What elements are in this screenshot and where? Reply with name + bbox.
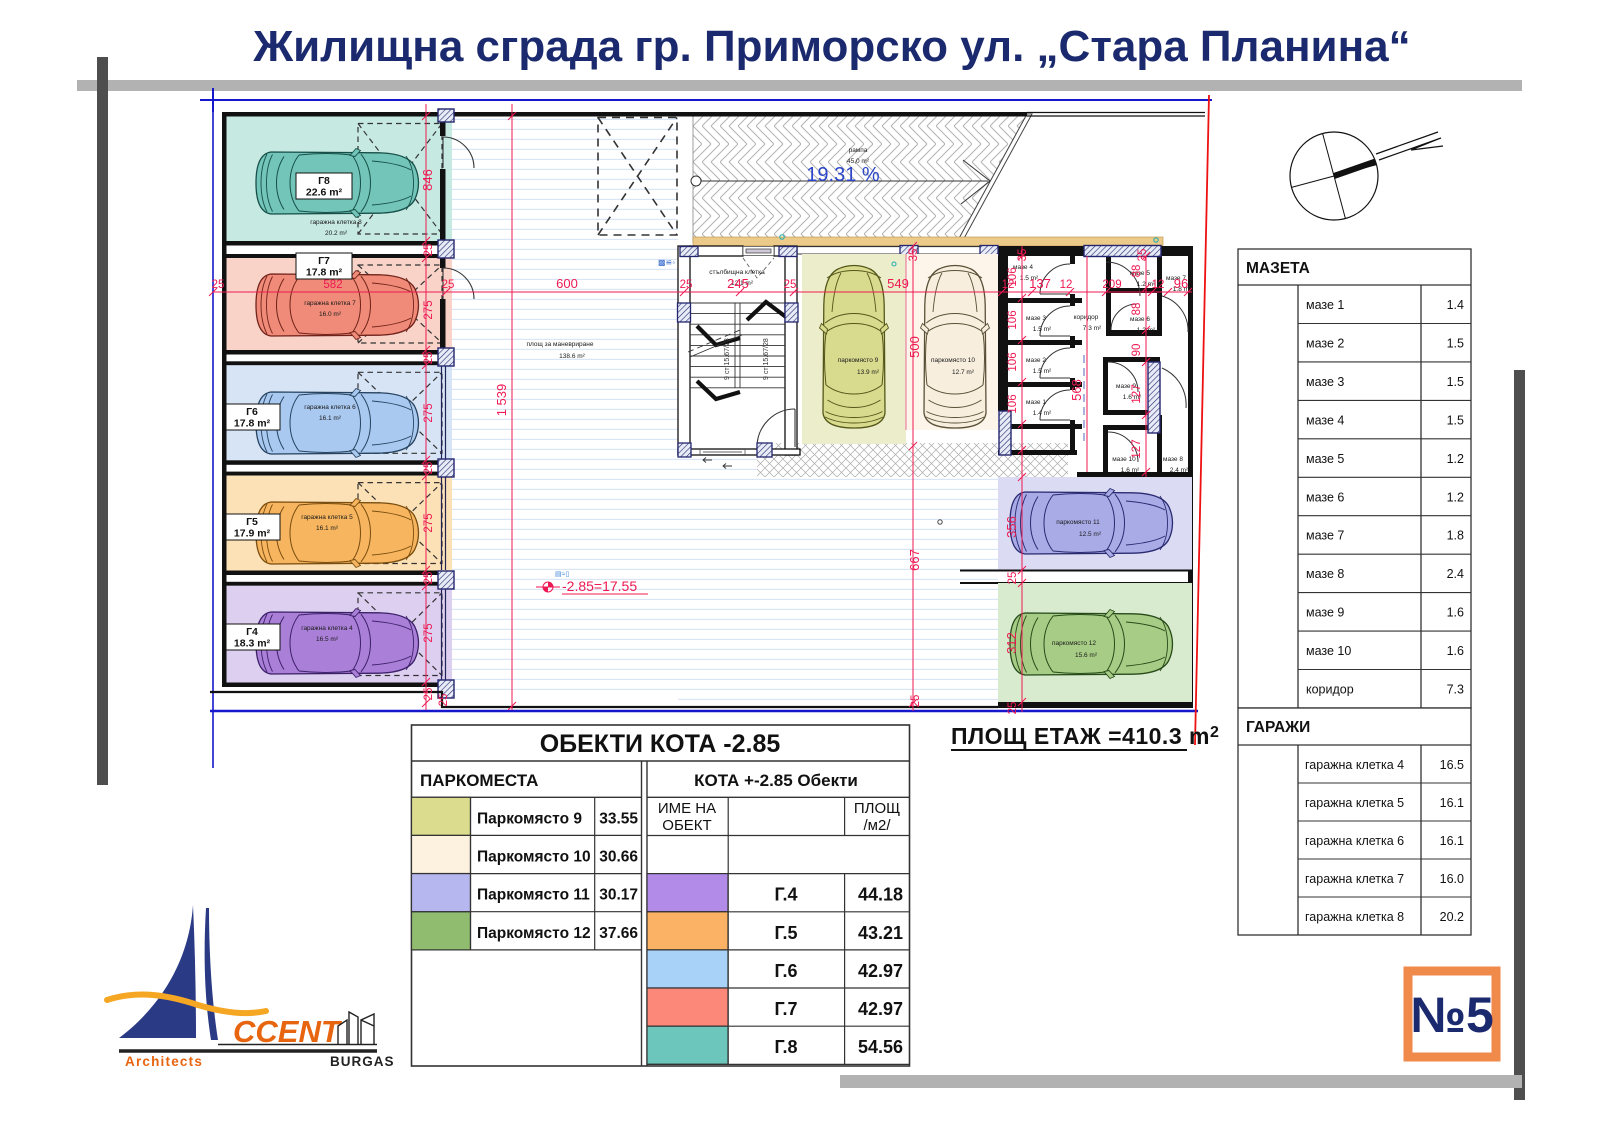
svg-text:1.5: 1.5 — [1447, 375, 1464, 389]
svg-text:25: 25 — [423, 572, 435, 585]
svg-text:Architects: Architects — [125, 1054, 203, 1069]
svg-text:275: 275 — [423, 513, 435, 532]
svg-text:мазе 6: мазе 6 — [1306, 490, 1344, 504]
svg-text:25: 25 — [423, 688, 435, 701]
svg-text:90: 90 — [1131, 344, 1143, 357]
svg-text:гаражна клетка 7: гаражна клетка 7 — [304, 300, 356, 307]
svg-text:-2.85=17.55: -2.85=17.55 — [562, 578, 637, 594]
svg-text:▤≈▯: ▤≈▯ — [555, 571, 569, 578]
svg-text:Г.5: Г.5 — [775, 923, 798, 943]
svg-text:Г.4: Г.4 — [775, 885, 798, 905]
svg-text:ПЛОЩ ЕТАЖ =410.3 m2: ПЛОЩ ЕТАЖ =410.3 m2 — [951, 723, 1219, 749]
svg-text:13.9 m²: 13.9 m² — [857, 369, 880, 376]
svg-text:12.5 m²: 12.5 m² — [1079, 531, 1102, 538]
svg-text:44.18: 44.18 — [858, 885, 903, 905]
svg-text:1.6: 1.6 — [1447, 644, 1464, 658]
svg-text:7.3 m²: 7.3 m² — [1083, 325, 1102, 332]
svg-text:42.97: 42.97 — [858, 999, 903, 1019]
svg-text:1.6 m²: 1.6 m² — [1121, 467, 1140, 474]
svg-text:Г.6: Г.6 — [775, 961, 798, 981]
svg-text:мазе 2: мазе 2 — [1026, 357, 1046, 364]
svg-text:7.3: 7.3 — [1447, 683, 1464, 697]
svg-text:гаражна клетка 8: гаражна клетка 8 — [310, 219, 362, 226]
svg-text:15.6 m²: 15.6 m² — [1075, 652, 1098, 659]
svg-text:Паркомясто 12: Паркомясто 12 — [477, 925, 591, 942]
svg-text:ПЛОЩ: ПЛОЩ — [854, 800, 900, 817]
svg-text:ОБЕКТ: ОБЕКТ — [662, 817, 711, 834]
svg-text:846: 846 — [420, 169, 435, 191]
svg-text:паркомясто 12: паркомясто 12 — [1052, 640, 1096, 647]
svg-text:Паркомясто 11: Паркомясто 11 — [477, 887, 590, 904]
svg-text:9 ст 15.67/28: 9 ст 15.67/28 — [763, 338, 770, 380]
svg-text:19.31 %: 19.31 % — [806, 164, 880, 186]
svg-text:гаражна клетка 4: гаражна клетка 4 — [301, 625, 353, 632]
svg-text:Г6: Г6 — [246, 406, 258, 418]
svg-text:2.4: 2.4 — [1447, 567, 1464, 581]
svg-text:33.55: 33.55 — [599, 810, 638, 827]
svg-text:паркомясто 9: паркомясто 9 — [838, 357, 879, 364]
svg-text:275: 275 — [423, 300, 435, 319]
svg-text:667: 667 — [907, 549, 922, 571]
svg-text:25: 25 — [1007, 572, 1019, 585]
svg-text:356: 356 — [1004, 516, 1019, 538]
svg-text:17.9 m²: 17.9 m² — [234, 528, 271, 540]
svg-text:12.7 m²: 12.7 m² — [952, 369, 975, 376]
svg-text:25: 25 — [423, 244, 435, 257]
svg-text:25: 25 — [442, 279, 455, 291]
svg-text:22.6 m²: 22.6 m² — [306, 187, 343, 199]
svg-text:17.8 m²: 17.8 m² — [234, 418, 271, 430]
svg-text:16.1: 16.1 — [1440, 796, 1464, 810]
svg-text:коридор: коридор — [1074, 314, 1099, 321]
svg-text:20.2 m²: 20.2 m² — [325, 230, 348, 237]
svg-text:275: 275 — [423, 403, 435, 422]
svg-text:16.1 m²: 16.1 m² — [316, 525, 339, 532]
svg-text:Жилищна сграда гр. Приморско у: Жилищна сграда гр. Приморско ул. „Стара … — [252, 22, 1410, 71]
svg-text:106: 106 — [1007, 310, 1019, 329]
svg-text:275: 275 — [423, 623, 435, 642]
svg-text:16.5 m²: 16.5 m² — [316, 636, 339, 643]
svg-text:25: 25 — [1007, 702, 1019, 715]
svg-text:20.2: 20.2 — [1440, 910, 1464, 924]
svg-text:25: 25 — [212, 279, 225, 291]
svg-text:стълбищна клетка: стълбищна клетка — [709, 268, 765, 276]
svg-text:16.0 m²: 16.0 m² — [319, 311, 342, 318]
svg-text:мазе 6: мазе 6 — [1130, 316, 1150, 323]
svg-text:гаражна клетка 4: гаражна клетка 4 — [1305, 758, 1404, 772]
svg-text:мазе 2: мазе 2 — [1306, 337, 1344, 351]
svg-text:25: 25 — [423, 462, 435, 475]
svg-text:гаражна клетка 6: гаражна клетка 6 — [1305, 834, 1404, 848]
svg-text:500: 500 — [907, 336, 922, 358]
svg-text:549: 549 — [887, 276, 909, 291]
svg-text:137: 137 — [1029, 276, 1051, 291]
svg-text:рампа: рампа — [849, 147, 868, 154]
svg-text:16.1 m²: 16.1 m² — [319, 415, 342, 422]
svg-text:16.0: 16.0 — [1440, 872, 1464, 886]
svg-text:1.5: 1.5 — [1447, 413, 1464, 427]
svg-text:1.4: 1.4 — [1447, 298, 1464, 312]
svg-text:ИМЕ НА: ИМЕ НА — [658, 800, 716, 817]
svg-text:1.5 m²: 1.5 m² — [1033, 326, 1052, 333]
svg-text:25: 25 — [784, 279, 797, 291]
svg-text:Г8: Г8 — [318, 175, 330, 187]
svg-text:ОБЕКТИ КОТА -2.85: ОБЕКТИ КОТА -2.85 — [540, 730, 781, 758]
svg-text:Г4: Г4 — [246, 626, 258, 638]
svg-text:12: 12 — [1152, 279, 1165, 291]
svg-text:гаражна клетка 5: гаражна клетка 5 — [1305, 796, 1404, 810]
svg-text:№5: №5 — [1410, 987, 1494, 1043]
svg-text:мазе 8: мазе 8 — [1306, 567, 1344, 581]
svg-text:1 539: 1 539 — [494, 384, 509, 417]
svg-text:106: 106 — [1007, 352, 1019, 371]
svg-text:мазе 3: мазе 3 — [1026, 315, 1046, 322]
svg-text:мазе 8: мазе 8 — [1163, 456, 1183, 463]
svg-text:Г.7: Г.7 — [775, 999, 798, 1019]
svg-text:коридор: коридор — [1306, 683, 1354, 697]
svg-text:▩≌◦: ▩≌◦ — [658, 258, 675, 267]
svg-text:МАЗЕТА: МАЗЕТА — [1246, 260, 1310, 277]
svg-text:мазе 10: мазе 10 — [1306, 644, 1351, 658]
svg-text:мазе 1: мазе 1 — [1306, 298, 1344, 312]
svg-text:30.17: 30.17 — [599, 887, 638, 904]
svg-text:18.3 m²: 18.3 m² — [234, 638, 271, 650]
svg-text:16.5: 16.5 — [1440, 758, 1464, 772]
svg-text:паркомясто 11: паркомясто 11 — [1056, 519, 1100, 526]
svg-text:мазе 3: мазе 3 — [1306, 375, 1344, 389]
svg-text:гаражна клетка 8: гаражна клетка 8 — [1305, 910, 1404, 924]
svg-text:Г7: Г7 — [318, 255, 330, 267]
svg-text:127: 127 — [1131, 439, 1143, 458]
svg-text:600: 600 — [556, 276, 578, 291]
svg-text:ГАРАЖИ: ГАРАЖИ — [1246, 719, 1310, 736]
svg-text:42.97: 42.97 — [858, 961, 903, 981]
svg-text:мазе 4: мазе 4 — [1306, 413, 1344, 427]
svg-text:127: 127 — [1131, 384, 1143, 403]
svg-text:245: 245 — [727, 276, 749, 291]
svg-text:25: 25 — [423, 352, 435, 365]
svg-text:25: 25 — [438, 694, 450, 707]
svg-text:209: 209 — [1102, 279, 1121, 291]
svg-text:BURGAS: BURGAS — [330, 1054, 395, 1069]
svg-text:568: 568 — [1069, 379, 1084, 401]
svg-text:1.2: 1.2 — [1447, 490, 1464, 504]
svg-text:25: 25 — [910, 695, 922, 708]
svg-text:30.66: 30.66 — [599, 848, 638, 865]
svg-text:ПАРКОМЕСТА: ПАРКОМЕСТА — [420, 771, 538, 790]
svg-text:мазе 5: мазе 5 — [1306, 452, 1344, 466]
svg-text:Г5: Г5 — [246, 516, 258, 528]
svg-text:1.2: 1.2 — [1447, 452, 1464, 466]
svg-text:582: 582 — [323, 279, 342, 291]
svg-text:паркомясто 10: паркомясто 10 — [931, 357, 975, 364]
svg-text:гаражна клетка 7: гаражна клетка 7 — [1305, 872, 1404, 886]
svg-text:96: 96 — [1174, 276, 1188, 291]
svg-text:1.5: 1.5 — [1447, 337, 1464, 351]
svg-text:1.6: 1.6 — [1447, 606, 1464, 620]
svg-text:Г.8: Г.8 — [775, 1037, 798, 1057]
svg-text:25: 25 — [680, 279, 693, 291]
svg-text:КОТА +-2.85 Обекти: КОТА +-2.85 Обекти — [694, 771, 858, 790]
svg-text:1.4 m²: 1.4 m² — [1033, 410, 1052, 417]
svg-text:CCENT: CCENT — [233, 1014, 343, 1049]
svg-text:106: 106 — [1007, 267, 1019, 286]
svg-text:Паркомясто 9: Паркомясто 9 — [477, 810, 582, 827]
svg-text:138.6 m²: 138.6 m² — [559, 353, 585, 360]
svg-text:1.5 m²: 1.5 m² — [1033, 368, 1052, 375]
svg-text:35: 35 — [908, 249, 920, 262]
svg-text:88: 88 — [1131, 265, 1143, 278]
svg-text:площ за маневриране: площ за маневриране — [527, 341, 594, 348]
svg-text:мазе 9: мазе 9 — [1306, 606, 1344, 620]
svg-text:/м2/: /м2/ — [864, 817, 892, 834]
svg-text:мазе 1: мазе 1 — [1026, 399, 1046, 406]
svg-text:2.4 m²: 2.4 m² — [1170, 467, 1189, 474]
svg-text:312: 312 — [1004, 632, 1019, 654]
svg-text:106: 106 — [1007, 394, 1019, 413]
svg-text:1.8: 1.8 — [1447, 529, 1464, 543]
svg-text:гаражна клетка 5: гаражна клетка 5 — [301, 514, 353, 521]
svg-text:37.66: 37.66 — [599, 925, 638, 942]
svg-text:12: 12 — [1060, 279, 1073, 291]
svg-text:43.21: 43.21 — [858, 923, 903, 943]
svg-text:гаражна клетка 6: гаражна клетка 6 — [304, 404, 356, 411]
svg-text:54.56: 54.56 — [858, 1037, 903, 1057]
svg-text:88: 88 — [1131, 303, 1143, 316]
svg-text:17.8 m²: 17.8 m² — [306, 267, 343, 279]
svg-text:мазе 7: мазе 7 — [1306, 529, 1344, 543]
svg-text:16.1: 16.1 — [1440, 834, 1464, 848]
svg-text:Паркомясто 10: Паркомясто 10 — [477, 848, 591, 865]
